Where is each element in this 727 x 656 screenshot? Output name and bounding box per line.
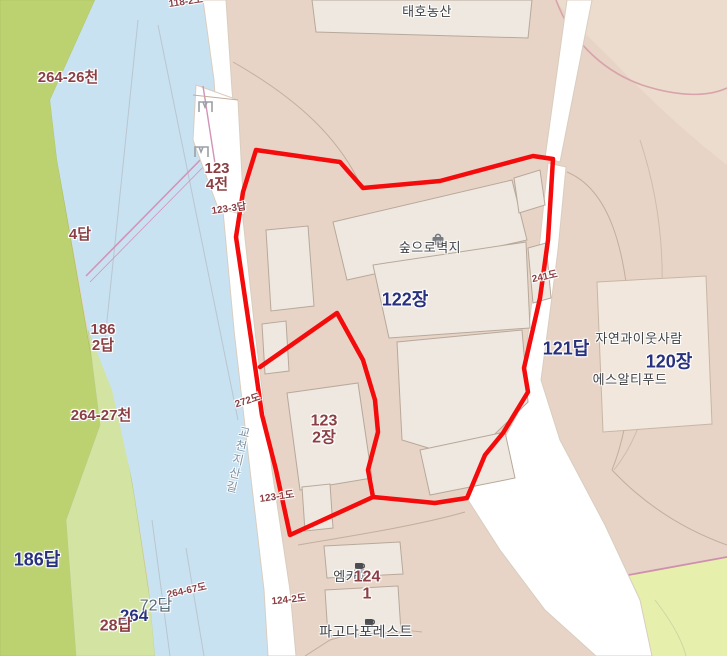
poi-label-taeho[interactable]: 태호농산 (402, 5, 452, 19)
poi-label-pagoda[interactable]: 파고다포레스트 (319, 624, 413, 639)
parcel-label-123-2: 123 2장 (311, 413, 338, 448)
poi-label-soop[interactable]: 숲으로벽지 (399, 241, 461, 255)
parcel-label-264-26: 264-26천 (38, 70, 99, 86)
poi-label-nature[interactable]: 자연과이웃사람 (595, 332, 682, 346)
parcel-label-4: 4답 (69, 227, 91, 243)
parcel-label-28: 28답 (100, 617, 133, 634)
map-viewport[interactable]: 태호농산 숲으로벽지 자연과이웃사람 에스알티푸드 엠카페 파고다포레스트 12… (0, 0, 727, 656)
zone-label-121: 121답 (543, 339, 590, 358)
zone-label-120: 120장 (646, 352, 693, 371)
parcel-label-123-4: 123 4전 (204, 161, 229, 193)
parcel-label-124-1: 124 1 (354, 569, 381, 604)
parcel-label-72: 72답 (140, 597, 173, 614)
parcel-label-186-2: 186 2답 (90, 322, 115, 354)
poi-label-srt[interactable]: 에스알티푸드 (593, 373, 668, 387)
zone-label-186: 186답 (14, 550, 61, 569)
parcel-label-264-27: 264-27천 (71, 408, 132, 424)
zone-label-122: 122장 (382, 290, 429, 309)
